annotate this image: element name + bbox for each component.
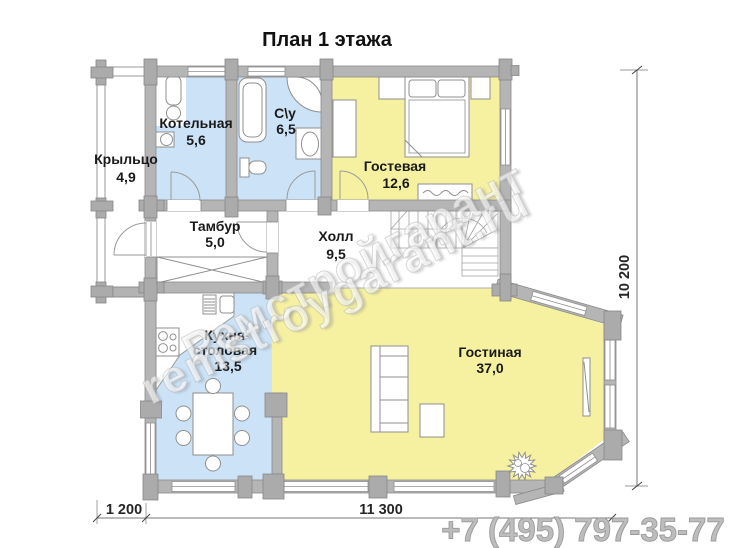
- svg-text:10 200: 10 200: [617, 255, 633, 299]
- svg-text:Крыльцо: Крыльцо: [94, 151, 158, 167]
- svg-text:Гостевая: Гостевая: [364, 158, 426, 174]
- svg-text:План 1 этажа: План 1 этажа: [262, 29, 393, 51]
- svg-text:С\у: С\у: [274, 105, 296, 121]
- svg-text:+7 (495) 797-35-77: +7 (495) 797-35-77: [441, 511, 724, 548]
- svg-text:Котельная: Котельная: [159, 115, 232, 131]
- svg-text:37,0: 37,0: [476, 360, 503, 376]
- svg-text:11 300: 11 300: [359, 502, 403, 518]
- svg-text:Тамбур: Тамбур: [190, 218, 241, 234]
- svg-text:Гостиная: Гостиная: [458, 344, 521, 360]
- svg-text:5,6: 5,6: [186, 132, 206, 148]
- svg-text:1 200: 1 200: [106, 502, 142, 518]
- svg-text:5,0: 5,0: [205, 234, 225, 250]
- svg-text:12,6: 12,6: [382, 175, 409, 191]
- svg-text:4,9: 4,9: [116, 169, 136, 185]
- svg-text:6,5: 6,5: [276, 121, 296, 137]
